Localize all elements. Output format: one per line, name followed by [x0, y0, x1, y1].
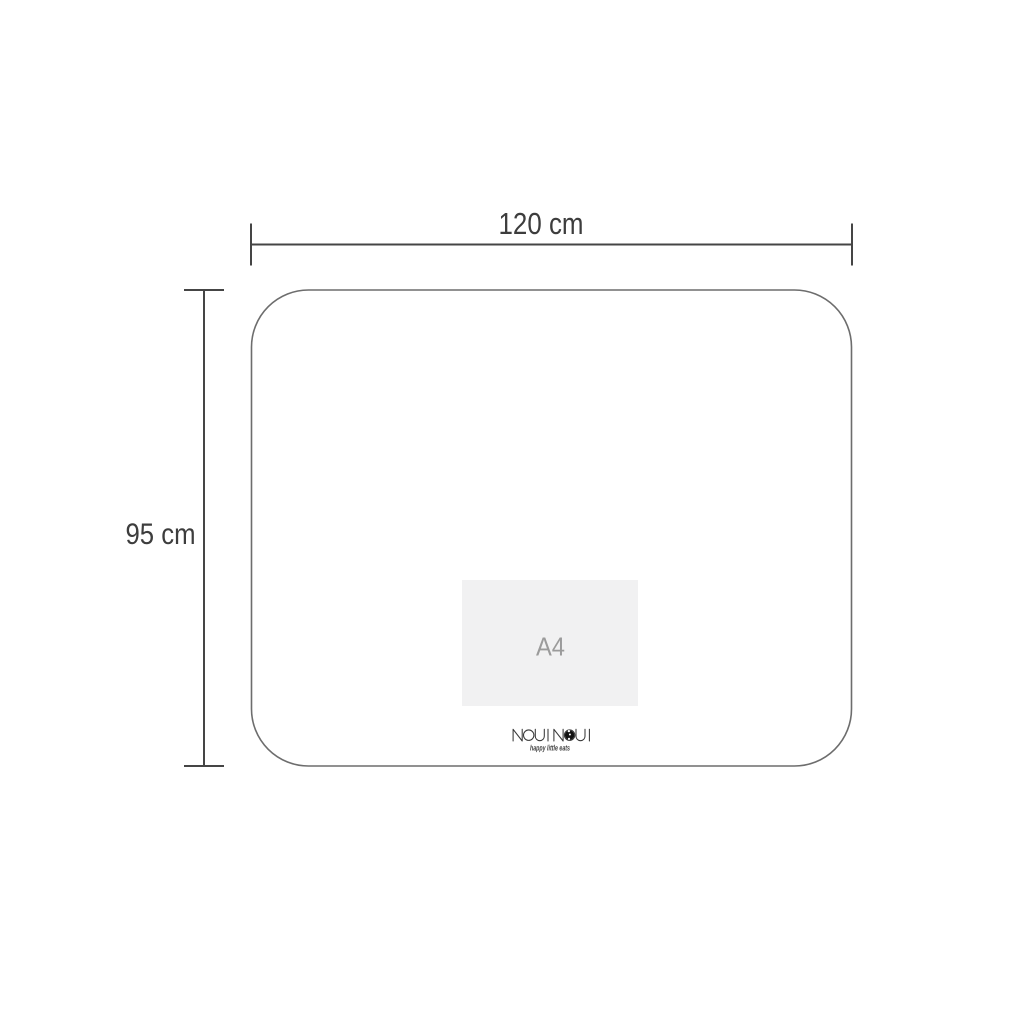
svg-text:95 cm: 95 cm	[126, 518, 196, 551]
svg-text:120 cm: 120 cm	[499, 206, 584, 241]
svg-text:A4: A4	[536, 632, 565, 662]
svg-text:happy little eats: happy little eats	[530, 743, 570, 752]
